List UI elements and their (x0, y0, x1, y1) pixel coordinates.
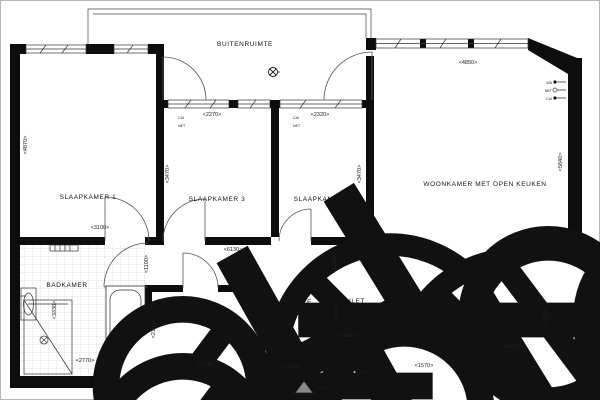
net-label: NET (178, 124, 186, 128)
dim-hal-width: <1100> (144, 255, 150, 273)
dim-badkamer-width: <2770> (76, 358, 95, 364)
floorplan-page: WA NET CAI CAI NET CAI NET BS04 BUITENRU… (0, 0, 600, 400)
room-label-woonkamer: WOONKAMER MET OPEN KEUKEN (423, 181, 546, 188)
room-label-entree: ENTREE (282, 299, 312, 306)
dim-badkamer-height: <3330> (52, 301, 58, 320)
dim-toilet-width: <1080> (340, 333, 359, 339)
dim-hal-length: <6130> (224, 247, 243, 253)
room-label-buitenruimte: BUITENRUIMTE (217, 41, 273, 48)
dim-slaapkamer3-width: <2270> (203, 112, 222, 118)
cai-label: CAI (546, 97, 552, 101)
dim-keuken-width: <3030> (503, 344, 522, 350)
room-label-inloopkast: INLOOPKAST (182, 308, 230, 315)
room-label-slaapkamer2: SLAAPKAMER 2 (294, 196, 351, 203)
dim-slaapkamer2-width: <2320> (311, 112, 330, 118)
dim-inloopkast-height: <2150> (151, 320, 157, 339)
dim-berging-width: <1570> (415, 363, 434, 369)
dim-slaapkamer1-height: <4870> (23, 136, 29, 155)
dim-hal-width2: <1100> (332, 255, 338, 273)
dim-slaapkamer3-height: <3470> (165, 165, 171, 184)
dim-woonkamer-width: <4850> (459, 60, 478, 66)
net-label: NET (293, 124, 301, 128)
entry-code-label: BS04 (317, 387, 326, 391)
floorplan-drawing: WA NET CAI CAI NET CAI NET BS04 BUITENRU… (0, 0, 600, 400)
dim-slaapkamer2-height: <3470> (357, 165, 363, 184)
room-label-berging: BERGING (410, 305, 444, 312)
dim-entree-width: <1350> (282, 364, 301, 370)
room-label-toilet: TOILET (339, 298, 365, 305)
dim-inloopkast-width: <2630> (196, 362, 215, 368)
meterkast-label: M.K. (362, 370, 371, 375)
cai-label: CAI (178, 116, 184, 120)
room-label-slaapkamer1: SLAAPKAMER 1 (60, 194, 117, 201)
cai-label: CAI (293, 116, 299, 120)
dim-keuken-height: <2130> (543, 307, 549, 326)
room-label-slaapkamer3: SLAAPKAMER 3 (189, 196, 246, 203)
wa-label: WA (546, 81, 552, 85)
net-label: NET (545, 89, 553, 93)
dim-woonkamer-height: <5840> (558, 153, 564, 172)
room-label-badkamer: BADKAMER (46, 282, 87, 289)
dim-toilet-height: <1250> (334, 304, 340, 323)
dim-slaapkamer1-width: <3100> (91, 225, 110, 231)
